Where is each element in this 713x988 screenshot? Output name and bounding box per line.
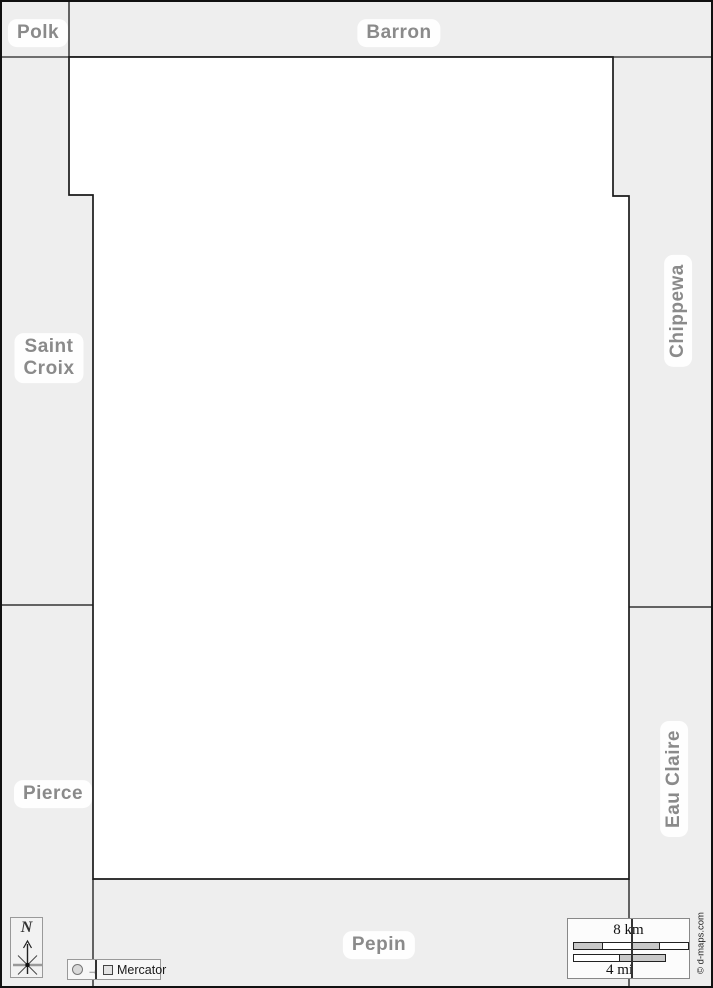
- county-label-saint-croix: Saint Croix: [14, 333, 83, 383]
- arrow-right-icon: →: [87, 964, 99, 976]
- flat-map-square-icon: [103, 965, 113, 975]
- projection-legend: → Mercator: [67, 959, 161, 980]
- county-label-barron: Barron: [357, 19, 440, 47]
- county-label-eau-claire: Eau Claire: [660, 721, 688, 837]
- projection-name: Mercator: [117, 963, 166, 977]
- boundary-line-overlay: [631, 919, 633, 978]
- county-label-pepin: Pepin: [343, 931, 415, 959]
- scale-box: 8 km 4 mi: [567, 918, 690, 979]
- county-label-chippewa: Chippewa: [664, 255, 692, 367]
- globe-circle-icon: [72, 964, 83, 975]
- county-boundaries-svg: [0, 0, 713, 988]
- dmaps-credit: © d-maps.com: [696, 912, 707, 974]
- compass-rose-icon: [11, 938, 44, 978]
- boundary-line-overlay: [95, 960, 97, 979]
- county-label-pierce: Pierce: [14, 780, 92, 808]
- scale-mi-label: 4 mi: [573, 963, 666, 978]
- compass-north-label: N: [11, 919, 42, 937]
- map-canvas: Polk Barron Saint Croix Chippewa Pierce …: [0, 0, 713, 988]
- central-county-outline: [69, 57, 629, 879]
- scale-km-label: 8 km: [568, 923, 689, 938]
- county-label-polk: Polk: [8, 19, 68, 47]
- compass-box: N: [10, 917, 43, 978]
- scale-bar-mi: [573, 954, 666, 962]
